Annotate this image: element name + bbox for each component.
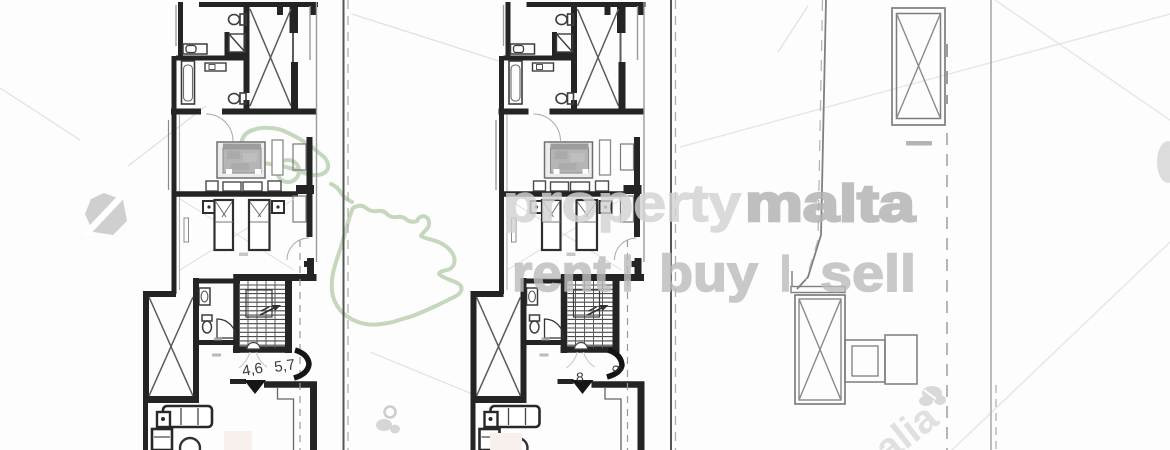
svg-text:5,7: 5,7 [273, 356, 296, 376]
svg-text:property: property [503, 175, 741, 233]
svg-text:I: I [780, 245, 791, 303]
svg-text:sell: sell [820, 245, 916, 303]
svg-text:rent: rent [512, 245, 611, 303]
svg-text:malta: malta [745, 175, 916, 233]
svg-text:I: I [622, 245, 633, 303]
svg-text:buy: buy [659, 245, 758, 303]
svg-text:4,6: 4,6 [241, 360, 264, 380]
svg-text:8: 8 [576, 369, 584, 385]
